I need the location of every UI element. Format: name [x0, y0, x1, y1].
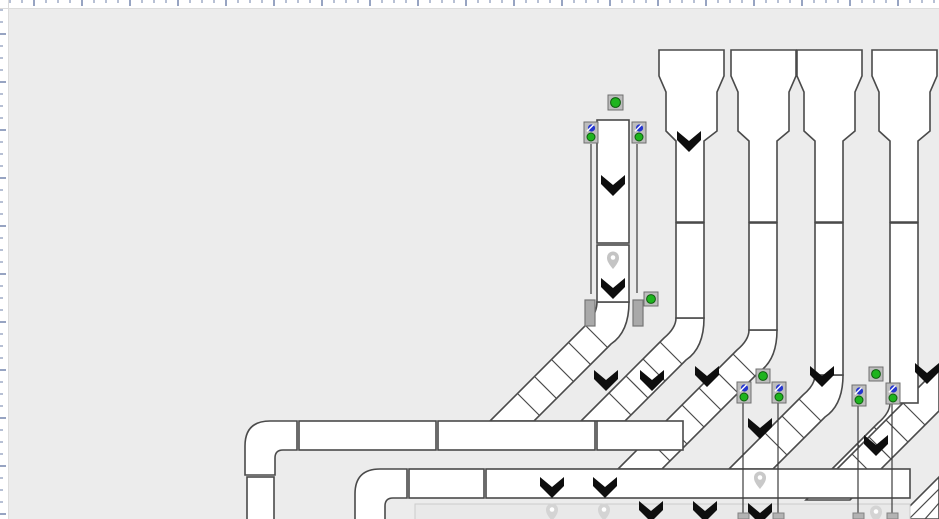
status-lamp-green: [647, 295, 656, 304]
layout-svg: [0, 0, 939, 519]
status-lamp-green: [740, 393, 748, 401]
beam-reflector-foot: [773, 513, 784, 519]
collector-1-segment-2[interactable]: [438, 421, 595, 450]
pin-hole: [758, 475, 763, 480]
status-lamp-green: [587, 133, 595, 141]
beam-reflector-foot: [853, 513, 864, 519]
pin-hole: [874, 509, 879, 514]
status-lamp-green: [872, 370, 881, 379]
photo-eye-sensor[interactable]: [737, 382, 751, 403]
emitter-lens: [856, 387, 863, 394]
photo-eye-sensor[interactable]: [772, 382, 786, 403]
emitter-lens: [588, 124, 595, 131]
collector-1-segment-3[interactable]: [597, 421, 683, 450]
location-pin-icon: [870, 506, 882, 519]
photo-eye-sensor[interactable]: [886, 383, 900, 404]
lane-2-segment[interactable]: [749, 223, 777, 330]
emitter-lens: [890, 385, 897, 392]
status-sensor[interactable]: [608, 95, 623, 110]
emitter-lens: [776, 384, 783, 391]
status-sensor[interactable]: [756, 369, 770, 383]
collector-1-feed[interactable]: [247, 477, 274, 519]
collector-2-segment-1[interactable]: [409, 469, 484, 498]
status-lamp-green: [635, 133, 643, 141]
status-sensor[interactable]: [869, 367, 883, 381]
photo-eye-sensor[interactable]: [852, 385, 866, 406]
pin-hole: [611, 255, 616, 260]
photo-eye-sensor[interactable]: [632, 122, 646, 143]
status-lamp-green: [775, 393, 783, 401]
emitter-lens: [636, 124, 643, 131]
beam-reflector-foot: [887, 513, 898, 519]
pin-hole: [602, 507, 607, 512]
status-sensor[interactable]: [644, 292, 658, 306]
side-guard-left[interactable]: [585, 300, 595, 326]
lane-3-segment[interactable]: [815, 223, 843, 375]
editor-canvas[interactable]: [0, 0, 939, 519]
horizontal-ruler: [0, 0, 939, 8]
status-lamp-green: [889, 394, 897, 402]
status-lamp-green: [855, 396, 863, 404]
emitter-lens: [741, 384, 748, 391]
status-lamp-green: [611, 98, 621, 108]
lane-4-segment[interactable]: [890, 223, 918, 403]
status-lamp-green: [759, 372, 768, 381]
lane-1-segment[interactable]: [676, 223, 704, 318]
collector-1-segment-1[interactable]: [299, 421, 436, 450]
beam-reflector-foot: [738, 513, 749, 519]
photo-eye-sensor[interactable]: [584, 122, 598, 143]
pin-hole: [550, 507, 555, 512]
side-guard-right[interactable]: [633, 300, 643, 326]
